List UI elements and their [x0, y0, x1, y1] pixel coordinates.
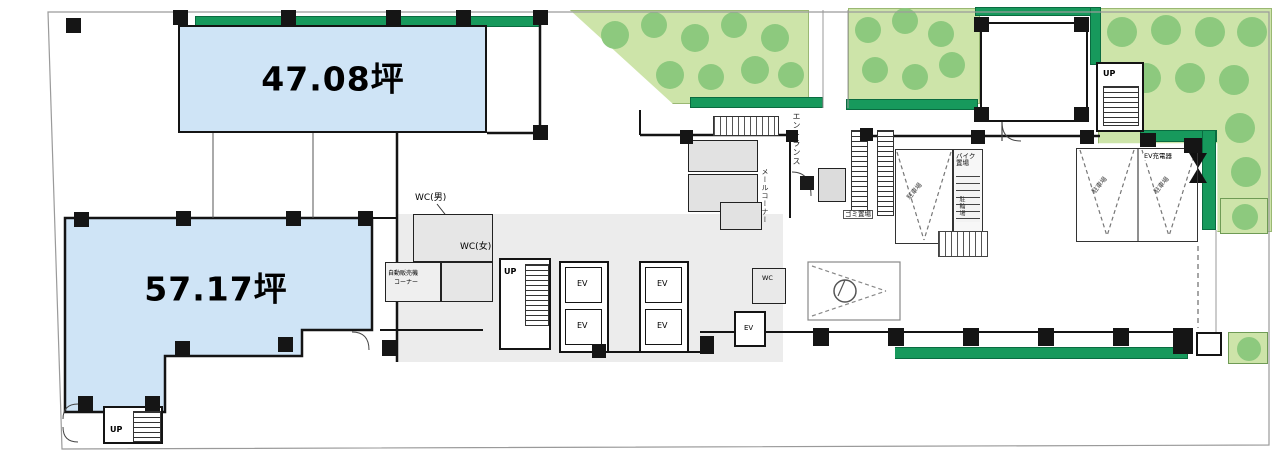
- core-stair-room: UP: [499, 258, 551, 350]
- column: [888, 328, 904, 346]
- small-wc-label: WC: [762, 275, 773, 282]
- lower-left-stair: UP: [103, 406, 163, 444]
- bike-parking-label: バイク置場: [956, 153, 980, 167]
- bike-rack: [877, 130, 894, 216]
- column: [680, 130, 693, 144]
- elevator-label[interactable]: EV: [657, 280, 668, 288]
- column: [173, 10, 188, 25]
- column: [860, 128, 873, 141]
- column: [963, 328, 979, 346]
- parking-stalls-pair: [1076, 148, 1198, 242]
- column: [971, 130, 985, 144]
- core-stair-up-label: UP: [504, 268, 516, 276]
- column: [533, 125, 548, 140]
- column: [533, 10, 548, 25]
- bike-rack: [851, 130, 868, 216]
- column: [175, 341, 190, 356]
- column: [974, 17, 989, 32]
- column: [1074, 17, 1089, 32]
- column: [281, 10, 296, 25]
- stair-treads: [938, 231, 988, 257]
- stair-up-label: UP: [1103, 70, 1115, 78]
- column: [1113, 328, 1129, 346]
- entrance-steps: [713, 116, 779, 136]
- vestibule-block: [800, 176, 814, 190]
- vestibule: [818, 168, 846, 202]
- column: [176, 211, 191, 226]
- vending-corner-label: コーナー: [394, 280, 418, 286]
- column: [1074, 107, 1089, 122]
- parking-stall: [895, 149, 953, 244]
- column: [456, 10, 471, 25]
- vending-room: 自動販売機 コーナー: [385, 262, 441, 302]
- service-elevator: EV: [734, 311, 766, 347]
- garbage-label: ゴミ置場: [843, 210, 873, 219]
- elevator-bank: EV EV: [559, 261, 609, 353]
- unit-upper-area-label: 47.08坪: [261, 63, 404, 98]
- stair-hatch: [133, 411, 161, 442]
- wc-men-room: [413, 214, 493, 262]
- column: [145, 396, 160, 411]
- elevator-bank: EV EV: [639, 261, 689, 353]
- mail-corner-label: メールコーナー: [760, 168, 770, 224]
- stair-hatch: [1103, 86, 1139, 126]
- column: [813, 328, 829, 346]
- column: [974, 107, 989, 122]
- wc-women-room: [441, 262, 493, 302]
- upper-right-stair: UP: [1096, 62, 1144, 132]
- column: [78, 396, 93, 411]
- column: [358, 211, 373, 226]
- entry-room: [720, 202, 762, 230]
- gate-box: [1196, 332, 1222, 356]
- column: [74, 212, 89, 227]
- elevator-label[interactable]: EV: [744, 325, 753, 332]
- stair-up-label: UP: [110, 426, 122, 434]
- bicycle-parking-label: 駐輪場: [957, 196, 966, 217]
- column: [278, 337, 293, 352]
- vending-label: 自動販売機: [388, 271, 418, 277]
- column: [592, 344, 606, 358]
- column: [1184, 138, 1202, 153]
- small-wc-room: WC: [752, 268, 786, 304]
- wc-women-label: WC(女): [460, 243, 491, 252]
- unit-lower-area-label: 57.17坪: [144, 273, 287, 308]
- ev-charger-label: EV充電器: [1143, 153, 1173, 160]
- column: [1038, 328, 1054, 346]
- elevator-label[interactable]: EV: [657, 322, 668, 330]
- corner-room: [980, 22, 1088, 122]
- elevator-label[interactable]: EV: [577, 280, 588, 288]
- column: [382, 340, 396, 356]
- stair-hatch: [525, 264, 549, 326]
- column: [1140, 133, 1156, 147]
- column: [286, 211, 301, 226]
- column: [1080, 130, 1094, 144]
- column: [386, 10, 401, 25]
- column: [700, 336, 714, 354]
- entry-room: [688, 140, 758, 172]
- floor-plan: 47.08坪 57.17坪 自動販売機 コーナー WC(男) WC(女) UP …: [0, 0, 1280, 459]
- wc-men-label: WC(男): [415, 194, 446, 203]
- column: [786, 130, 798, 142]
- column: [66, 18, 81, 33]
- column: [1173, 328, 1193, 354]
- elevator-label[interactable]: EV: [577, 322, 588, 330]
